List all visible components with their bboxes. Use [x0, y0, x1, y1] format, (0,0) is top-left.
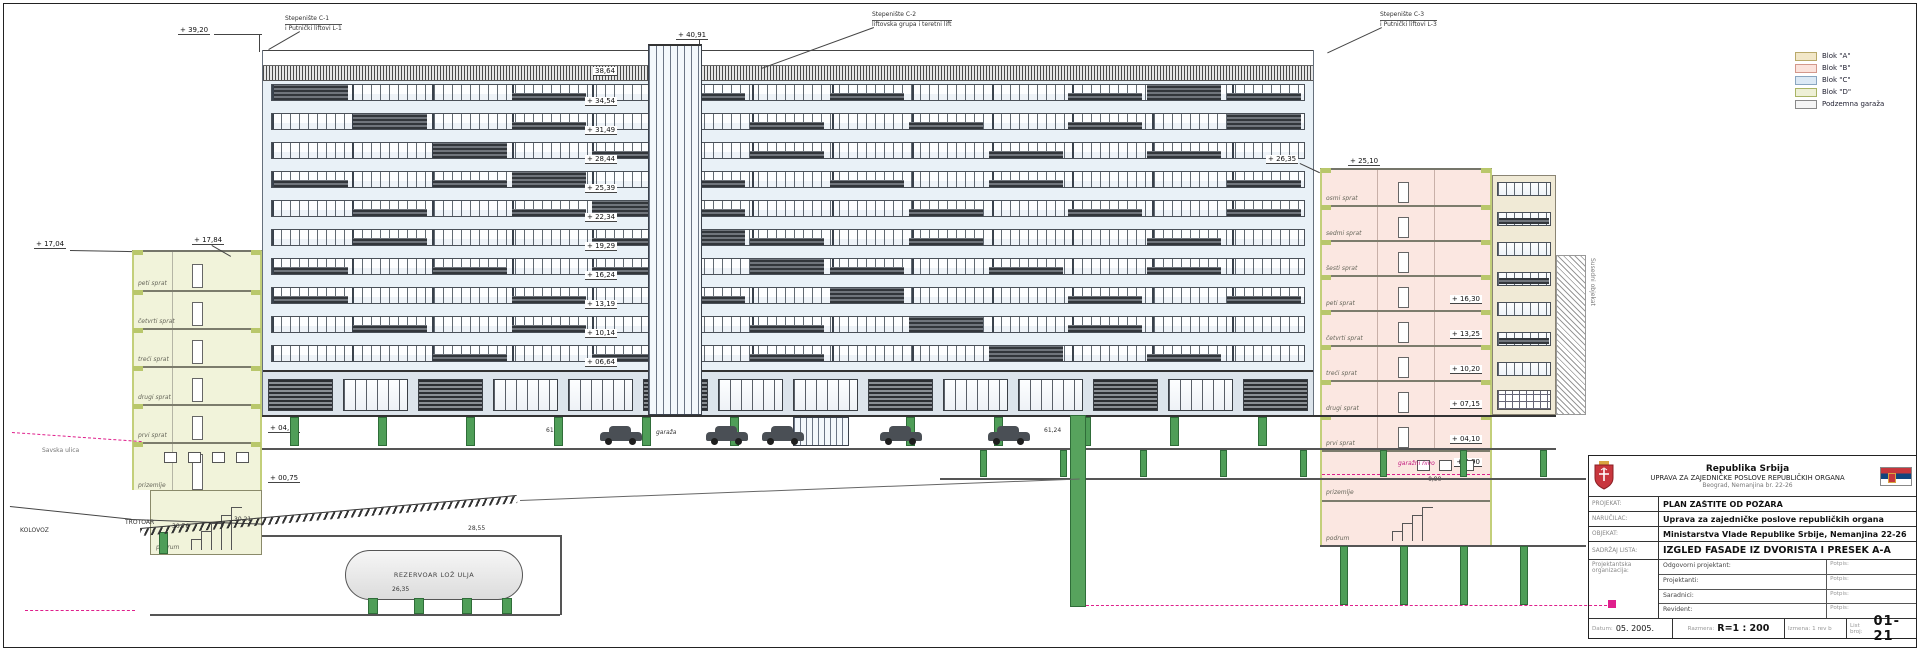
- elevation-tag: + 25,39: [585, 184, 617, 193]
- section-floor: četvrti sprat+ 13,25: [1322, 310, 1490, 345]
- leader-line: [268, 31, 300, 50]
- signature-role: Projektanti:: [1659, 575, 1827, 589]
- window-blind: [989, 180, 1063, 187]
- section-floor: peti sprat+ 16,30: [1322, 275, 1490, 310]
- signature-role: Saradnici:: [1659, 590, 1827, 604]
- garage-column: [1340, 546, 1348, 605]
- legend-swatch: [1795, 88, 1817, 97]
- floor-label: prvi sprat: [1326, 440, 1355, 447]
- elevation-tag: + 06,64: [585, 358, 617, 367]
- right-facade-blok-a: [1492, 175, 1556, 415]
- window-dark: [750, 259, 824, 274]
- interior-wall: [1377, 312, 1378, 345]
- slab-pad: [1321, 205, 1331, 210]
- window-blind: [750, 151, 824, 158]
- facade-floor: [263, 138, 1313, 167]
- garage-column: [1400, 546, 1408, 605]
- garage-column: [1258, 417, 1267, 446]
- utility-marker: [1608, 600, 1616, 608]
- garage-floor-line: [262, 448, 1556, 450]
- window-band: [271, 345, 1305, 362]
- shutter-segment: [418, 379, 483, 411]
- garage-column: [1060, 450, 1067, 477]
- door: [1398, 217, 1409, 238]
- floor-label: treći sprat: [138, 356, 169, 363]
- door: [192, 264, 203, 288]
- parapet-dim: 38,64: [593, 67, 617, 76]
- elevation-tag: + 28,44: [585, 155, 617, 164]
- interior-wall: [1377, 417, 1378, 450]
- title-row-value: Uprava za zajedničke poslove republičkih…: [1659, 515, 1916, 524]
- floor-label: treći sprat: [1326, 370, 1357, 377]
- car-icon: [988, 432, 1030, 441]
- signature-role: Odgovorni projektant:: [1659, 560, 1827, 574]
- elevation-tag: + 00,75: [268, 474, 300, 483]
- elevation-tag: + 16,30: [1450, 295, 1482, 304]
- floor-label: šesti sprat: [1326, 265, 1357, 272]
- scale-value: R=1 : 200: [1717, 623, 1769, 634]
- floor-label: drugi sprat: [1326, 405, 1359, 412]
- scale-label: Razmera:: [1688, 626, 1715, 632]
- window-band: [1497, 272, 1551, 286]
- stair-label-c1: Stepenište C-1 i Putnički liftovi L-1: [285, 15, 342, 33]
- facade-hatch-band: [263, 66, 1313, 81]
- section-floor: prvi sprat: [134, 404, 260, 442]
- leader-tick: [259, 34, 260, 52]
- left-section-blok-d: peti spratčetvrti sprattreći spratdrugi …: [132, 250, 262, 490]
- door: [192, 340, 203, 364]
- signature-rows: Odgovorni projektant:Potpis:Projektanti:…: [1659, 560, 1916, 618]
- interior-wall: [1377, 382, 1378, 415]
- storefront-segment: [1168, 379, 1233, 411]
- slab-pad: [133, 366, 143, 371]
- facade-floor: [263, 109, 1313, 138]
- window-blind: [989, 267, 1063, 274]
- ramp-line: [520, 479, 1080, 501]
- shutter-segment: [268, 379, 333, 411]
- section-floor: treći sprat: [134, 328, 260, 366]
- window-blind: [830, 180, 904, 187]
- right-top-elevation-2: + 25,10: [1348, 157, 1380, 166]
- section-floor: drugi sprat+ 07,15: [1322, 380, 1490, 415]
- title-row-label: OBJEKAT:: [1589, 527, 1659, 541]
- slab-pad: [1481, 380, 1491, 385]
- title-address: Beograd, Nemanjina br. 22-26: [1619, 482, 1876, 489]
- window-band: [1497, 182, 1551, 196]
- title-row-label: SADRŽAJ LISTA:: [1589, 542, 1659, 559]
- window-blind: [433, 180, 507, 187]
- roof-mid-elevation: + 40,91: [676, 31, 708, 40]
- road-line: [10, 506, 131, 520]
- utility-dash-bottom: [1086, 605, 1612, 606]
- sheet-number-cell: List broj: 01-21: [1847, 619, 1916, 638]
- garage-column: [1460, 450, 1467, 477]
- window-band: [1497, 332, 1551, 346]
- window-blind: [512, 325, 586, 332]
- fuel-tank-label: REZERVOAR LOŽ ULJA: [394, 571, 474, 579]
- window-dark: [1147, 85, 1221, 100]
- left-topleft-elevation: + 17,04: [34, 240, 66, 249]
- interior-wall: [1434, 242, 1435, 275]
- garage-dim-right: 61,24: [1044, 427, 1061, 434]
- street-kolovoz-label: KOLOVOZ: [20, 527, 49, 534]
- window-blind: [750, 354, 824, 361]
- elevation-tag: + 19,29: [585, 242, 617, 251]
- interior-wall: [1377, 347, 1378, 380]
- elevation-tag: + 10,14: [585, 329, 617, 338]
- car-icon: [762, 432, 804, 441]
- window-blind: [512, 122, 586, 129]
- window-blind: [1227, 180, 1301, 187]
- floor-label: prizemlje: [1326, 489, 1354, 496]
- window-blind: [830, 267, 904, 274]
- garage-column: [554, 417, 563, 446]
- main-facade-blok-c: + 34,54+ 31,49+ 28,44+ 25,39+ 22,34+ 19,…: [262, 50, 1314, 415]
- interior-wall: [1377, 242, 1378, 275]
- elevation-tag: + 22,34: [585, 213, 617, 222]
- slab-pad: [251, 442, 261, 447]
- facade-floor: [263, 167, 1313, 196]
- shutter-segment: [1093, 379, 1158, 411]
- section-floor: prvi sprat+ 04,10: [1322, 415, 1490, 450]
- window-blind: [512, 209, 586, 216]
- slab-pad: [133, 442, 143, 447]
- elevation-tag: + 13,19: [585, 300, 617, 309]
- storefront-segment: [793, 379, 858, 411]
- slab-pad: [251, 366, 261, 371]
- section-floor: drugi sprat: [134, 366, 260, 404]
- interior-wall: [1377, 170, 1378, 205]
- window-blind: [750, 238, 824, 245]
- garage-column: [1220, 450, 1227, 477]
- interior-wall: [1377, 207, 1378, 240]
- section-basement: podrum: [1322, 500, 1490, 547]
- window-blind: [1499, 218, 1549, 224]
- slab-pad: [133, 250, 143, 255]
- garage-column: [466, 417, 475, 446]
- basement-window: [164, 452, 177, 463]
- signature-section: Projektantska organizacija: Odgovorni pr…: [1589, 560, 1916, 619]
- door: [1398, 427, 1409, 448]
- floor-label: četvrti sprat: [1326, 335, 1363, 342]
- floor-label: prizemlje: [138, 482, 166, 489]
- legend-item-label: Blok "A": [1822, 52, 1851, 60]
- window-band: [1497, 212, 1551, 226]
- date-cell: Datum: 05. 2005.: [1589, 619, 1673, 638]
- legend-item: Blok "D": [1795, 86, 1884, 98]
- basement-grid: [1497, 390, 1551, 410]
- elevation-tag: + 34,54: [585, 97, 617, 106]
- window-band: [271, 84, 1305, 101]
- window-blind: [909, 238, 983, 245]
- sheet-number-value: 01-21: [1873, 614, 1913, 644]
- garage-column: [159, 532, 168, 554]
- window-blind: [1227, 93, 1301, 100]
- window-blind: [909, 122, 983, 129]
- elevation-tag: + 13,25: [1450, 330, 1482, 339]
- street-name: Savska ulica: [42, 447, 79, 454]
- floor-label: peti sprat: [1326, 300, 1355, 307]
- slab-pad: [1321, 168, 1331, 173]
- storefront-segment: [343, 379, 408, 411]
- window-band: [271, 113, 1305, 130]
- facade-floor: [263, 312, 1313, 341]
- signature-row: Odgovorni projektant:Potpis:: [1659, 560, 1916, 575]
- slab-pad: [1481, 345, 1491, 350]
- slab-pad: [251, 328, 261, 333]
- interior-wall: [172, 406, 173, 442]
- interior-wall: [1434, 170, 1435, 205]
- slab-pad: [1481, 310, 1491, 315]
- garage-column: [1380, 450, 1387, 477]
- leader-line: [1327, 27, 1382, 53]
- signature-field: Potpis:: [1827, 575, 1916, 589]
- title-row-value: Ministarstva Vlade Republike Srbije, Nem…: [1659, 530, 1916, 539]
- facade-ground-floor: [263, 370, 1313, 415]
- window-blind: [512, 296, 586, 303]
- scale-cell: Razmera: R=1 : 200: [1673, 619, 1785, 638]
- door: [1398, 252, 1409, 273]
- section-floor: šesti sprat: [1322, 240, 1490, 275]
- storefront-segment: [493, 379, 558, 411]
- revision-value: Izmena: 1 rev b: [1788, 626, 1832, 632]
- slab-pad: [1481, 168, 1491, 173]
- title-row: OBJEKAT:Ministarstva Vlade Republike Srb…: [1589, 527, 1916, 542]
- window-band: [271, 229, 1305, 246]
- service-shaft: [1070, 415, 1086, 607]
- title-country: Republika Srbija: [1619, 464, 1876, 474]
- title-row-value: IZGLED FASADE IZ DVORIŠTA I PRESEK A-A: [1659, 545, 1916, 556]
- floor-label: peti sprat: [138, 280, 167, 287]
- window-blind: [830, 93, 904, 100]
- slab-pad: [1481, 205, 1491, 210]
- stair-label-c2: Stepenište C-2 liftovska grupa i teretni…: [872, 11, 952, 29]
- slab-pad: [133, 290, 143, 295]
- legend-item: Podzemna garaža: [1795, 98, 1884, 110]
- slab-pad: [251, 290, 261, 295]
- signature-row: Saradnici:Potpis:: [1659, 590, 1916, 605]
- slab-dim: 28,55: [468, 525, 485, 532]
- garage-column: [378, 417, 387, 446]
- tank-dim: 26,35: [392, 586, 409, 593]
- title-bottom-row: Datum: 05. 2005. Razmera: R=1 : 200 Izme…: [1589, 619, 1916, 638]
- garage-column: [980, 450, 987, 477]
- slab-pad: [133, 404, 143, 409]
- facade-floor: [263, 254, 1313, 283]
- stair-label-line1: Stepenište C-3: [1380, 11, 1437, 21]
- tank-saddle: [502, 598, 512, 614]
- legend-item: Blok "A": [1795, 50, 1884, 62]
- shutter-segment: [868, 379, 933, 411]
- window-band: [1497, 302, 1551, 316]
- interior-wall: [1377, 277, 1378, 310]
- window-dark: [830, 288, 904, 303]
- door: [192, 302, 203, 326]
- section-floor: osmi sprat: [1322, 170, 1490, 205]
- legend-swatch: [1795, 52, 1817, 61]
- neighbor-hatch: [1556, 255, 1586, 415]
- section-floor: peti sprat: [134, 252, 260, 290]
- interior-wall: [1434, 347, 1435, 380]
- elevation-tag: + 07,15: [1450, 400, 1482, 409]
- title-org: UPRAVA ZA ZAJEDNIČKE POSLOVE REPUBLIČKIH…: [1619, 474, 1876, 482]
- window-dark: [989, 346, 1063, 361]
- interior-wall: [1434, 312, 1435, 345]
- elevation-tag: + 16,24: [585, 271, 617, 280]
- slab-pad: [251, 404, 261, 409]
- garage-label: garaža: [656, 429, 676, 436]
- car-icon: [880, 432, 922, 441]
- floor-label: prvi sprat: [138, 432, 167, 439]
- roof-left-elevation: + 39,20: [178, 26, 210, 35]
- pit-top-line: [262, 535, 560, 537]
- window-blind: [512, 93, 586, 100]
- window-blind: [1227, 209, 1301, 216]
- garage-column: [1460, 546, 1468, 605]
- window-blind: [353, 209, 427, 216]
- legend-item: Blok "C": [1795, 74, 1884, 86]
- window-blind: [274, 296, 348, 303]
- date-label: Datum:: [1592, 626, 1613, 632]
- utility-line: [12, 432, 142, 442]
- title-row: PROJEKAT:PLAN ZAŠTITE OD POŽARA: [1589, 497, 1916, 512]
- stair-label-c3: Stepenište C-3 i Putnički liftovi L-3: [1380, 11, 1437, 29]
- right-section-blok-b: osmi spratsedmi spratšesti spratpeti spr…: [1320, 168, 1492, 545]
- legend-item: Blok "B": [1795, 62, 1884, 74]
- floor-label: četvrti sprat: [138, 318, 175, 325]
- window-dark: [1227, 114, 1301, 129]
- storefront-segment: [1018, 379, 1083, 411]
- interior-wall: [1434, 277, 1435, 310]
- leader-line: [70, 250, 132, 252]
- stair-label-line2: i Putnički liftovi L-1: [285, 25, 342, 33]
- legend-swatch: [1795, 64, 1817, 73]
- legend-item-label: Podzemna garaža: [1822, 100, 1884, 108]
- stair-label-line1: Stepenište C-2: [872, 11, 952, 21]
- signature-field: Potpis:: [1827, 590, 1916, 604]
- slab-pad: [1481, 240, 1491, 245]
- date-value: 05. 2005.: [1616, 624, 1654, 633]
- slab-pad: [1321, 345, 1331, 350]
- pit-bottom-line: [150, 614, 560, 616]
- window-blind: [750, 122, 824, 129]
- stair-step: [1422, 507, 1433, 541]
- legend-swatch: [1795, 76, 1817, 85]
- window-blind: [433, 354, 507, 361]
- basement-window: [188, 452, 201, 463]
- garage-column: [1140, 450, 1147, 477]
- interior-wall: [172, 330, 173, 366]
- section-floor: četvrti sprat: [134, 290, 260, 328]
- tank-saddle: [368, 598, 378, 614]
- leader-line: [214, 34, 262, 35]
- title-block-header: Republika Srbija UPRAVA ZA ZAJEDNIČKE PO…: [1589, 456, 1916, 497]
- window-band: [1497, 242, 1551, 256]
- window-blind: [353, 238, 427, 245]
- window-band: [271, 258, 1305, 275]
- interior-wall: [1434, 382, 1435, 415]
- garage-column: [1520, 546, 1528, 605]
- window-blind: [274, 180, 348, 187]
- elevation-tag: + 04,10: [1450, 435, 1482, 444]
- garage-level-label: garažni nivo: [1398, 460, 1435, 467]
- slab-pad: [1321, 240, 1331, 245]
- window-blind: [1068, 325, 1142, 332]
- stair-label-line2: liftovska grupa i teretni lift: [872, 21, 952, 29]
- garage-column: [290, 417, 299, 446]
- window-blind: [1147, 354, 1221, 361]
- window-dark: [274, 85, 348, 100]
- window-blind: [1068, 209, 1142, 216]
- window-band: [271, 171, 1305, 188]
- facade-floor: [263, 196, 1313, 225]
- storefront-segment: [943, 379, 1008, 411]
- window-blind: [1068, 93, 1142, 100]
- car-icon: [706, 432, 748, 441]
- floor-label: osmi sprat: [1326, 195, 1358, 202]
- garage-column: [1540, 450, 1547, 477]
- slab-pad: [1481, 275, 1491, 280]
- interior-wall: [1434, 417, 1435, 450]
- window-blind: [909, 209, 983, 216]
- stair-label-line2: i Putnički liftovi L-3: [1380, 21, 1437, 29]
- interior-wall: [172, 368, 173, 404]
- neighbor-label: Susedni objekat: [1589, 258, 1596, 306]
- garage-column: [642, 417, 651, 446]
- window-blind: [1499, 278, 1549, 284]
- basement-window: [1439, 460, 1452, 471]
- window-band: [271, 316, 1305, 333]
- basement-window: [236, 452, 249, 463]
- car-icon: [600, 432, 642, 441]
- title-row: SADRŽAJ LISTA:IZGLED FASADE IZ DVORIŠTA …: [1589, 542, 1916, 560]
- fuel-tank: REZERVOAR LOŽ ULJA: [345, 550, 523, 600]
- window-dark: [433, 143, 507, 158]
- stair-step: [231, 507, 242, 550]
- facade-floor: [263, 80, 1313, 109]
- serbia-flag-icon: [1880, 467, 1912, 486]
- garage-column: [1300, 450, 1307, 477]
- title-block: Republika Srbija UPRAVA ZA ZAJEDNIČKE PO…: [1588, 455, 1917, 639]
- signature-role: Revident:: [1659, 604, 1827, 618]
- window-blind: [989, 151, 1063, 158]
- interior-wall: [1434, 207, 1435, 240]
- interior-wall: [172, 252, 173, 290]
- legend: Blok "A"Blok "B"Blok "C"Blok "D"Podzemna…: [1795, 50, 1884, 110]
- storefront-segment: [568, 379, 633, 411]
- window-blind: [274, 267, 348, 274]
- facade-floor: [263, 225, 1313, 254]
- org-label: Projektantska organizacija:: [1589, 560, 1659, 618]
- facade-floor: [263, 283, 1313, 312]
- stair-label-line1: Stepenište C-1: [285, 15, 342, 25]
- slab-pad: [1321, 275, 1331, 280]
- door: [1398, 182, 1409, 203]
- window-blind: [1227, 296, 1301, 303]
- facade-floor: [263, 341, 1313, 370]
- foundation-line: [1320, 545, 1586, 547]
- window-dark: [909, 317, 983, 332]
- legend-item-label: Blok "B": [1822, 64, 1851, 72]
- door: [1398, 287, 1409, 308]
- door: [1398, 357, 1409, 378]
- coat-of-arms-icon: [1593, 461, 1615, 491]
- slab-pad: [1321, 380, 1331, 385]
- signature-field: Potpis:: [1827, 560, 1916, 574]
- window-dark: [353, 114, 427, 129]
- window-band: [1497, 362, 1551, 376]
- window-blind: [750, 325, 824, 332]
